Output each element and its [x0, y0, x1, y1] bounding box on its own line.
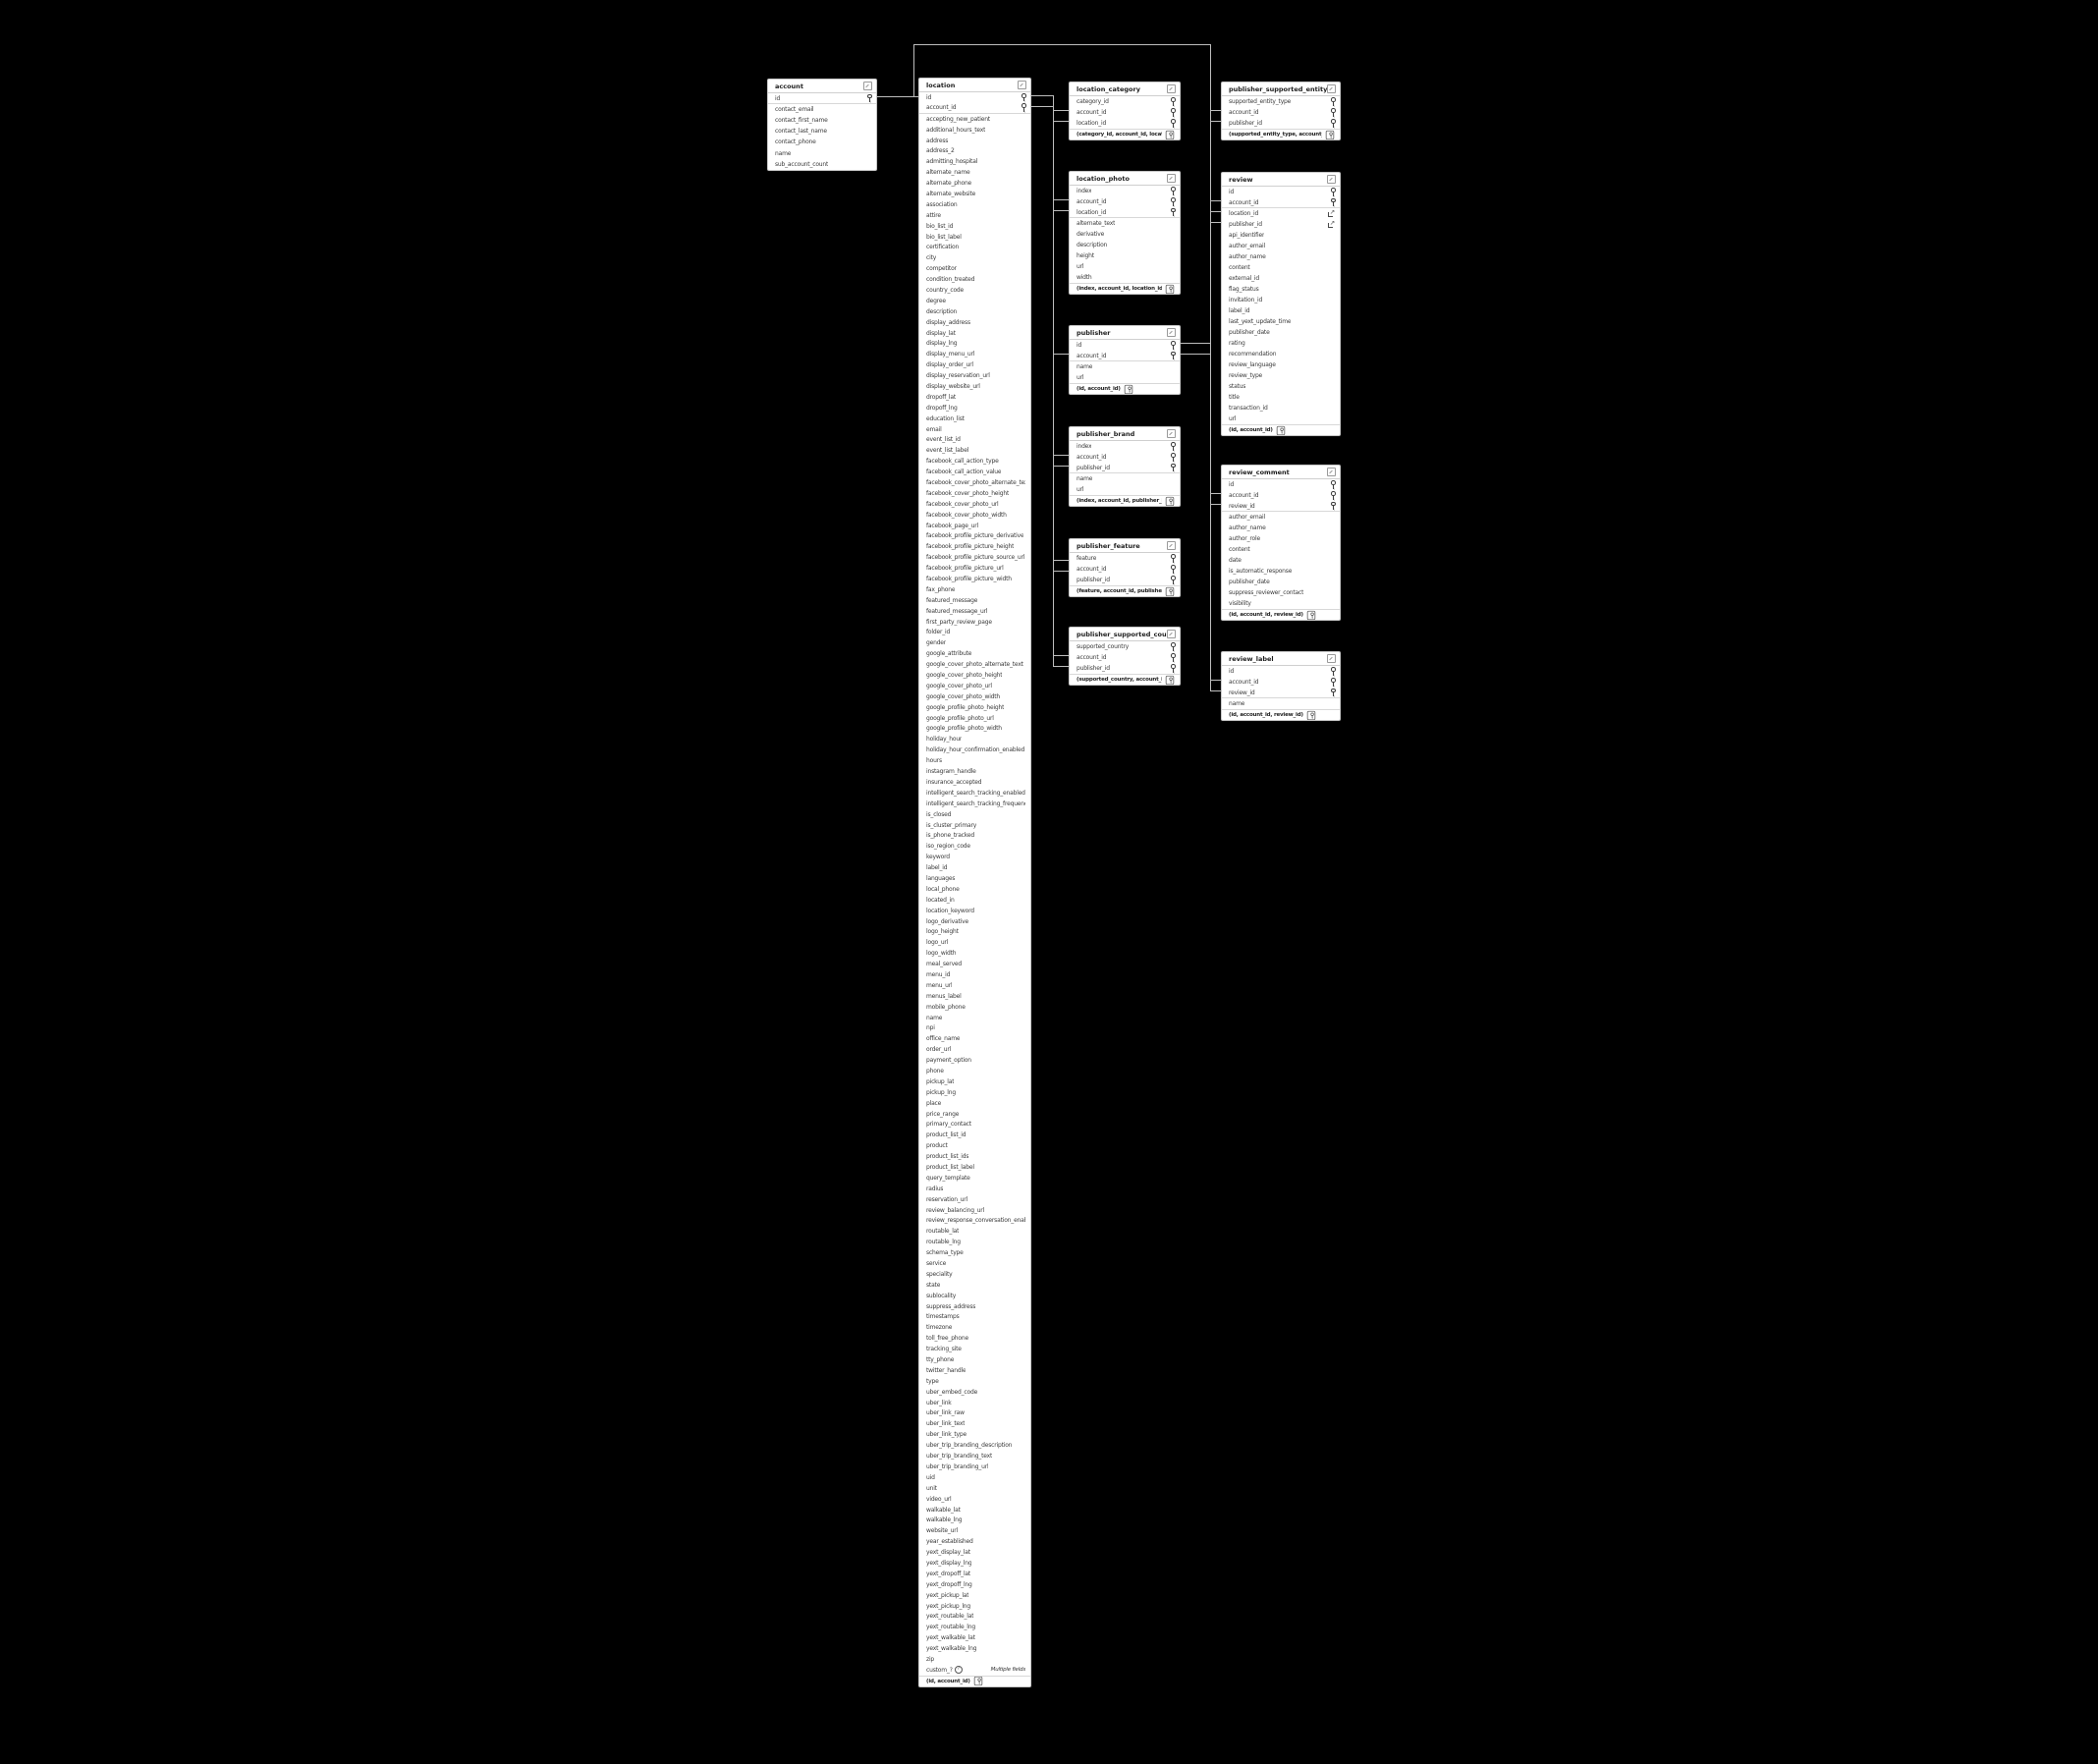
column-row: id [1222, 187, 1340, 197]
column-name: address_2 [926, 147, 955, 154]
column-name-group: transaction_id [1229, 405, 1268, 412]
column-name: location_id [1229, 210, 1258, 217]
table-name: review_comment [1229, 469, 1290, 476]
column-row: name [1070, 361, 1180, 372]
column-name-group: located_in [926, 897, 955, 904]
column-name: width [1077, 274, 1092, 281]
table-review[interactable]: reviewidaccount_idlocation_idpublisher_i… [1221, 172, 1341, 436]
column-name-group: education_list [926, 415, 965, 422]
column-name: event_list_label [926, 447, 968, 454]
column-row: facebook_profile_picture_url [919, 563, 1030, 574]
column-name-group: languages [926, 875, 955, 882]
column-name-group: account_id [1077, 353, 1106, 359]
column-name-group: service [926, 1260, 946, 1267]
column-name: api_identifier [1229, 232, 1264, 239]
column-row: publisher_id [1222, 118, 1340, 129]
column-row: author_role [1222, 533, 1340, 544]
table-publisher_supported_country[interactable]: publisher_supported_countrysupported_cou… [1069, 627, 1181, 686]
table-header[interactable]: publisher_brand [1070, 427, 1180, 441]
column-name-group: gender [926, 639, 946, 646]
composite-key-text: (id, account_id) [1229, 427, 1273, 433]
column-row: title [1222, 392, 1340, 403]
column-name: uber_embed_code [926, 1389, 977, 1396]
table-header[interactable]: publisher [1070, 326, 1180, 340]
column-name-group: holiday_hour_confirmation_enabled [926, 746, 1024, 753]
column-row: google_cover_photo_alternate_text [919, 659, 1030, 670]
expand-table-icon[interactable] [1327, 175, 1336, 184]
primary-key-icon [1170, 97, 1175, 106]
column-row: degree [919, 296, 1030, 306]
column-name-group: product_list_label [926, 1164, 974, 1171]
column-name: suppress_address [926, 1303, 975, 1310]
column-name: pickup_lng [926, 1089, 956, 1096]
column-name-group: facebook_cover_photo_width [926, 512, 1007, 519]
column-name: location_keyword [926, 908, 974, 914]
primary-key-icon [1170, 664, 1175, 673]
column-name-group: alternate_name [926, 169, 970, 176]
column-name: review_balancing_url [926, 1207, 984, 1214]
column-name-group: holiday_hour [926, 736, 962, 743]
column-name: facebook_profile_picture_height [926, 543, 1014, 550]
column-row: facebook_profile_picture_derivative [919, 531, 1030, 542]
table-header[interactable]: review_label [1222, 652, 1340, 666]
column-name: feature [1077, 555, 1096, 562]
column-row: price_range [919, 1109, 1030, 1120]
column-name: account_id [1229, 199, 1258, 206]
column-row: tty_phone [919, 1354, 1030, 1365]
column-name: website_url [926, 1527, 958, 1534]
column-name-group: review_language [1229, 361, 1276, 368]
column-name: display_address [926, 319, 970, 326]
table-name: publisher_brand [1077, 430, 1134, 438]
column-name: year_established [926, 1538, 973, 1545]
column-row: logo_width [919, 948, 1030, 959]
column-name: supported_entity_type [1229, 98, 1291, 105]
connector-line [1181, 343, 1210, 344]
column-name: name [1077, 363, 1092, 370]
column-name: toll_free_phone [926, 1335, 968, 1342]
column-row: routable_lng [919, 1237, 1030, 1247]
column-name-group: address_2 [926, 147, 955, 154]
column-name-group: google_profile_photo_height [926, 704, 1004, 711]
column-name: google_cover_photo_width [926, 693, 1000, 700]
column-name-group: pickup_lng [926, 1089, 956, 1096]
primary-key-icon [1330, 119, 1335, 128]
column-row: is_cluster_primary [919, 820, 1030, 831]
column-name-group: uber_trip_branding_text [926, 1453, 992, 1460]
column-row: height [1070, 250, 1180, 261]
column-name: query_template [926, 1175, 970, 1182]
column-name: radius [926, 1185, 943, 1192]
column-name: name [1229, 700, 1244, 707]
column-name-group: display_order_url [926, 361, 973, 368]
primary-key-icon [1330, 108, 1335, 117]
column-name: country_code [926, 287, 964, 294]
composite-key-text: (feature, account_id, publisher_id) [1077, 588, 1162, 594]
column-name-group: hours [926, 757, 942, 764]
column-name: account_id [1229, 492, 1258, 499]
primary-key-icon [1170, 197, 1175, 206]
connector-line [1031, 95, 1053, 96]
column-row: name [1070, 473, 1180, 484]
column-name-group: alternate_text [1077, 220, 1115, 227]
column-name-group: office_name [926, 1035, 960, 1042]
column-name: recommendation [1229, 351, 1276, 358]
table-location[interactable]: locationidaccount_idaccepting_new_patien… [918, 78, 1031, 1687]
column-name: fax_phone [926, 586, 955, 593]
connector-line [1053, 110, 1069, 111]
column-name-group: mobile_phone [926, 1004, 966, 1011]
expand-table-icon[interactable] [863, 82, 872, 90]
expand-table-icon[interactable] [1167, 174, 1176, 183]
column-name: dropoff_lng [926, 405, 958, 412]
column-name: id [1077, 342, 1081, 349]
connector-line [1210, 200, 1221, 201]
column-row: custom_??Multiple fields [919, 1665, 1030, 1676]
table-header[interactable]: publisher_supported_entity [1222, 83, 1340, 96]
column-name-group: payment_option [926, 1057, 971, 1064]
column-row: country_code [919, 285, 1030, 296]
column-name-group: rating [1229, 340, 1245, 347]
composite-key-text: (index, account_id, location_id) [1077, 286, 1162, 292]
table-review_label[interactable]: review_labelidaccount_idreview_idname(id… [1221, 651, 1341, 721]
column-name: google_cover_photo_alternate_text [926, 661, 1023, 668]
column-row: fax_phone [919, 584, 1030, 595]
column-name-group: instagram_handle [926, 768, 976, 775]
column-name-group: account_id [1229, 199, 1258, 206]
expand-table-icon[interactable] [1167, 429, 1176, 438]
column-row: timezone [919, 1322, 1030, 1333]
table-header[interactable]: location [919, 79, 1030, 92]
column-name: google_profile_photo_width [926, 725, 1002, 732]
column-name-group: publisher_id [1229, 120, 1262, 127]
connector-line [1053, 571, 1069, 572]
column-name: gender [926, 639, 946, 646]
column-name: display_lng [926, 340, 957, 347]
column-name-group: account_id [1077, 654, 1106, 661]
connector-line [1210, 690, 1221, 691]
column-row: facebook_profile_picture_source_url [919, 552, 1030, 563]
column-name: account_id [1229, 109, 1258, 116]
column-name: featured_message [926, 597, 977, 604]
column-name: admitting_hospital [926, 158, 977, 165]
column-name-group: display_lat [926, 330, 956, 337]
column-name: facebook_profile_picture_derivative [926, 532, 1023, 539]
column-name-group: review_response_conversation_enabled [926, 1217, 1025, 1224]
column-name-group: review_id [1229, 503, 1255, 510]
table-account[interactable]: accountidcontact_emailcontact_first_name… [767, 79, 877, 171]
column-name: uber_link_text [926, 1420, 965, 1427]
column-name: content [1229, 546, 1250, 553]
column-name-group: toll_free_phone [926, 1335, 968, 1342]
column-name-group: account_id [1077, 109, 1106, 116]
column-name: unit [926, 1485, 937, 1492]
column-name: zip [926, 1656, 934, 1663]
column-name: publisher_id [1077, 577, 1110, 583]
column-row: review_type [1222, 370, 1340, 381]
column-row: radius [919, 1184, 1030, 1194]
column-name: display_order_url [926, 361, 973, 368]
column-name-group: review_balancing_url [926, 1207, 984, 1214]
column-name-group: category_id [1077, 98, 1109, 105]
column-name: logo_width [926, 950, 956, 957]
column-name: walkable_lng [926, 1516, 962, 1523]
column-row: reservation_url [919, 1194, 1030, 1205]
column-name-group: yext_dropoff_lat [926, 1571, 970, 1577]
table-header[interactable]: account [768, 80, 876, 93]
expand-table-icon[interactable] [1327, 654, 1336, 663]
connector-line [913, 44, 1211, 45]
expand-table-icon[interactable] [1167, 541, 1176, 550]
column-name-group: yext_pickup_lng [926, 1603, 970, 1610]
column-name: author_email [1229, 514, 1265, 521]
column-row: menus_label [919, 991, 1030, 1002]
column-name-group: intelligent_search_tracking_frequency [926, 800, 1025, 807]
connector-line [913, 44, 914, 97]
column-row: featured_message_url [919, 606, 1030, 617]
table-header[interactable]: publisher_feature [1070, 539, 1180, 553]
column-name-group: facebook_profile_picture_width [926, 576, 1012, 582]
column-name-group: account_id [1229, 679, 1258, 686]
column-name-group: yext_routable_lng [926, 1624, 975, 1630]
table-header[interactable]: location_category [1070, 83, 1180, 96]
column-name-group: yext_dropoff_lng [926, 1581, 972, 1588]
key-icon [1168, 132, 1171, 138]
column-row: iso_region_code [919, 841, 1030, 852]
table-location_category[interactable]: location_categorycategory_idaccount_idlo… [1069, 82, 1181, 140]
column-row: description [919, 306, 1030, 317]
composite-key-footer: (feature, account_id, publisher_id) [1070, 585, 1180, 596]
column-row: index [1070, 441, 1180, 452]
column-row: order_url [919, 1044, 1030, 1055]
column-row: account_id [1222, 677, 1340, 688]
table-publisher[interactable]: publisheridaccount_idnameurl(id, account… [1069, 325, 1181, 395]
column-name: timestamps [926, 1313, 960, 1320]
column-name: account_id [1077, 198, 1106, 205]
column-row: content [1222, 544, 1340, 555]
column-name: intelligent_search_tracking_frequency [926, 800, 1025, 807]
table-header[interactable]: location_photo [1070, 172, 1180, 186]
column-name-group: certification [926, 244, 959, 250]
column-name-group: competitor [926, 265, 957, 272]
column-name: iso_region_code [926, 843, 970, 850]
column-name: dropoff_lat [926, 394, 956, 401]
column-name-group: invitation_id [1229, 297, 1262, 303]
column-name-group: alternate_website [926, 191, 975, 197]
column-name: id [775, 95, 780, 102]
column-name: type [926, 1378, 939, 1385]
expand-table-icon[interactable] [1167, 630, 1176, 638]
column-name-group: logo_width [926, 950, 956, 957]
column-name: account_id [1077, 454, 1106, 461]
column-row: supported_country [1070, 641, 1180, 652]
column-name: reservation_url [926, 1196, 967, 1203]
column-name-group: account_id [926, 104, 956, 111]
column-row: facebook_cover_photo_width [919, 510, 1030, 521]
table-header[interactable]: review [1222, 173, 1340, 187]
column-name: place [926, 1100, 941, 1107]
column-name: url [1077, 374, 1083, 381]
column-row: is_automatic_response [1222, 566, 1340, 577]
table-name: account [775, 83, 803, 90]
column-name: menu_id [926, 971, 950, 978]
column-name: index [1077, 188, 1091, 194]
column-name: date [1229, 557, 1242, 564]
table-review_comment[interactable]: review_commentidaccount_idreview_idautho… [1221, 465, 1341, 621]
column-row: pickup_lat [919, 1076, 1030, 1087]
column-row: event_list_label [919, 445, 1030, 456]
expand-table-icon[interactable] [1327, 84, 1336, 93]
column-name-group: index [1077, 188, 1091, 194]
column-name: external_id [1229, 275, 1259, 282]
column-name-group: contact_first_name [775, 117, 828, 124]
column-name: account_id [926, 104, 956, 111]
column-name: review_id [1229, 503, 1255, 510]
column-row: email [919, 424, 1030, 435]
composite-key-footer: (id, account_id) [919, 1676, 1030, 1686]
column-row: display_lng [919, 338, 1030, 349]
table-location_photo[interactable]: location_photoindexaccount_idlocation_id… [1069, 171, 1181, 295]
column-name-group: publisher_id [1077, 577, 1110, 583]
composite-key-footer: (id, account_id) [1070, 383, 1180, 394]
column-row: alternate_phone [919, 178, 1030, 189]
column-name-group: phone [926, 1068, 944, 1075]
column-name: flag_status [1229, 286, 1259, 293]
column-name-group: first_party_review_page [926, 619, 992, 626]
column-name-group: yext_display_lng [926, 1560, 971, 1567]
column-name-group: state [926, 1282, 940, 1289]
connector-line [877, 96, 918, 97]
column-row: date [1222, 555, 1340, 566]
column-name-group: yext_pickup_lat [926, 1592, 968, 1599]
column-name-group: additional_hours_text [926, 127, 985, 134]
column-name: is_closed [926, 811, 951, 818]
column-row: location_id [1070, 118, 1180, 129]
column-row: speciality [919, 1269, 1030, 1280]
primary-key-icon [1170, 442, 1175, 451]
column-name: uber_link [926, 1400, 952, 1406]
column-row: product [919, 1140, 1030, 1151]
composite-key-text: (category_id, account_id, location_id) [1077, 132, 1162, 138]
column-name: accepting_new_patient [926, 116, 990, 123]
column-row: label_id [1222, 305, 1340, 316]
column-name-group: degree [926, 298, 946, 304]
column-name: twitter_handle [926, 1367, 966, 1374]
column-name: phone [926, 1068, 944, 1075]
column-name-group: email [926, 426, 942, 433]
key-icon [1309, 712, 1312, 718]
composite-key-text: (id, account_id) [1077, 386, 1121, 392]
table-header[interactable]: publisher_supported_country [1070, 628, 1180, 641]
primary-key-icon [1021, 93, 1025, 102]
column-name-group: name [1077, 475, 1092, 482]
column-name: id [926, 94, 931, 101]
column-name-group: publisher_id [1077, 665, 1110, 672]
expand-table-icon[interactable] [1167, 84, 1176, 93]
column-row: intelligent_search_tracking_enabled [919, 788, 1030, 799]
column-name-group: sublocality [926, 1293, 956, 1299]
column-name: contact_last_name [775, 128, 827, 135]
column-name: degree [926, 298, 946, 304]
column-name: pickup_lat [926, 1078, 954, 1085]
column-row: city [919, 252, 1030, 263]
table-publisher_supported_entity[interactable]: publisher_supported_entitysupported_enti… [1221, 82, 1341, 140]
primary-key-icon [1170, 453, 1175, 462]
column-name-group: admitting_hospital [926, 158, 977, 165]
column-name-group: name [775, 150, 791, 157]
column-row: rating [1222, 338, 1340, 349]
column-name-group: is_automatic_response [1229, 568, 1292, 575]
column-name-group: menu_url [926, 982, 952, 989]
expand-table-icon[interactable] [1327, 468, 1336, 476]
column-name: display_reservation_url [926, 372, 990, 379]
column-name: holiday_hour [926, 736, 962, 743]
column-name: facebook_profile_picture_source_url [926, 554, 1024, 561]
column-name: uber_link_type [926, 1431, 966, 1438]
composite-key-icon [1307, 710, 1316, 719]
column-row: insurance_accepted [919, 777, 1030, 788]
column-name: transaction_id [1229, 405, 1268, 412]
table-publisher_brand[interactable]: publisher_brandindexaccount_idpublisher_… [1069, 426, 1181, 507]
column-name: insurance_accepted [926, 779, 981, 786]
column-name: last_yext_update_time [1229, 318, 1291, 325]
column-row: toll_free_phone [919, 1333, 1030, 1344]
column-name-group: dropoff_lat [926, 394, 956, 401]
column-name: tty_phone [926, 1356, 954, 1363]
column-row: uber_trip_branding_text [919, 1451, 1030, 1461]
connector-line [1053, 354, 1069, 355]
column-name-group: account_id [1077, 566, 1106, 573]
composite-key-icon [973, 1677, 982, 1685]
composite-key-icon [1166, 284, 1175, 293]
column-name-group: content [1229, 264, 1250, 271]
column-row: google_profile_photo_url [919, 713, 1030, 724]
column-row: contact_phone [768, 137, 876, 147]
table-header[interactable]: review_comment [1222, 466, 1340, 479]
column-name: author_role [1229, 535, 1260, 542]
column-row: uber_link [919, 1398, 1030, 1408]
column-name-group: iso_region_code [926, 843, 970, 850]
column-name-group: derivative [1077, 231, 1104, 238]
expand-table-icon[interactable] [1018, 81, 1026, 89]
primary-key-icon [1330, 480, 1335, 489]
column-name-group: content [1229, 546, 1250, 553]
column-row: id [1222, 666, 1340, 677]
table-name: review [1229, 176, 1253, 184]
column-name-group: meal_served [926, 961, 962, 967]
key-icon [1127, 386, 1130, 392]
column-row: yext_pickup_lng [919, 1601, 1030, 1612]
key-icon [1168, 588, 1171, 594]
expand-table-icon[interactable] [1167, 328, 1176, 337]
column-row: uber_trip_branding_url [919, 1461, 1030, 1472]
column-name-group: uber_link_type [926, 1431, 966, 1438]
table-name: publisher [1077, 329, 1111, 337]
diagram-canvas[interactable]: accountidcontact_emailcontact_first_name… [0, 0, 2098, 1764]
primary-key-icon [1170, 187, 1175, 195]
column-name: service [926, 1260, 946, 1267]
primary-key-icon [1021, 103, 1025, 112]
column-name-group: suppress_address [926, 1303, 975, 1310]
column-name-group: bio_list_label [926, 234, 962, 241]
column-row: display_address [919, 317, 1030, 328]
column-row: publisher_date [1222, 327, 1340, 338]
column-name: label_id [1229, 307, 1249, 314]
table-publisher_feature[interactable]: publisher_featurefeatureaccount_idpublis… [1069, 538, 1181, 597]
column-name: suppress_reviewer_contact [1229, 589, 1303, 596]
column-row: recommendation [1222, 349, 1340, 359]
column-name-group: id [926, 94, 931, 101]
